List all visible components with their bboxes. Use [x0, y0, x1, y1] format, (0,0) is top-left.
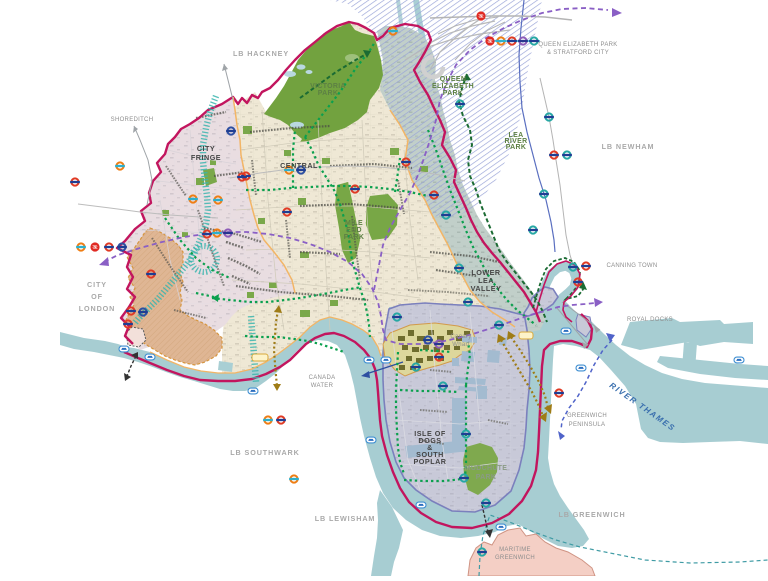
svg-text:PARK: PARK	[443, 90, 464, 97]
svg-text:LB NEWHAM: LB NEWHAM	[602, 142, 655, 151]
svg-text:SHOREDITCH: SHOREDITCH	[111, 117, 154, 123]
svg-text:Canary: Canary	[450, 334, 471, 340]
svg-text:MARITIME: MARITIME	[499, 547, 531, 553]
svg-text:MUDCHUTE: MUDCHUTE	[465, 465, 507, 472]
svg-text:QUEEN ELIZABETH PARK: QUEEN ELIZABETH PARK	[538, 42, 617, 48]
svg-text:LB LEWISHAM: LB LEWISHAM	[315, 514, 376, 523]
svg-text:ROYAL DOCKS: ROYAL DOCKS	[627, 317, 673, 323]
svg-text:VICTORIA: VICTORIA	[310, 83, 346, 90]
svg-text:FRINGE: FRINGE	[191, 153, 221, 162]
svg-text:& STRATFORD CITY: & STRATFORD CITY	[547, 50, 609, 56]
svg-text:CITY: CITY	[197, 144, 215, 153]
svg-text:GREENWICH: GREENWICH	[567, 413, 607, 419]
svg-text:QUEEN: QUEEN	[440, 76, 466, 83]
svg-text:LONDON: LONDON	[79, 304, 116, 313]
svg-text:END: END	[346, 227, 362, 234]
svg-text:PARK: PARK	[506, 144, 527, 151]
svg-text:POPLAR: POPLAR	[414, 457, 447, 466]
svg-text:CENTRAL: CENTRAL	[280, 161, 318, 170]
svg-text:ELIZABETH: ELIZABETH	[432, 83, 474, 90]
svg-text:OF: OF	[91, 292, 103, 301]
svg-text:PARK: PARK	[318, 90, 339, 97]
svg-text:WATER: WATER	[311, 383, 334, 389]
svg-text:CITY: CITY	[87, 280, 107, 289]
svg-text:CANADA: CANADA	[309, 375, 336, 381]
svg-text:LB HACKNEY: LB HACKNEY	[233, 49, 289, 58]
svg-text:Wharf: Wharf	[452, 342, 470, 348]
svg-text:GREENWICH: GREENWICH	[495, 555, 535, 561]
svg-text:CANNING TOWN: CANNING TOWN	[606, 263, 657, 269]
svg-text:LB SOUTHWARK: LB SOUTHWARK	[230, 448, 300, 457]
svg-text:PARK: PARK	[344, 234, 365, 241]
svg-text:MILE: MILE	[345, 220, 363, 227]
svg-text:VALLEY: VALLEY	[471, 284, 502, 293]
svg-text:PENINSULA: PENINSULA	[569, 422, 606, 428]
svg-text:PARK: PARK	[476, 474, 497, 481]
svg-text:LB GREENWICH: LB GREENWICH	[558, 510, 625, 519]
